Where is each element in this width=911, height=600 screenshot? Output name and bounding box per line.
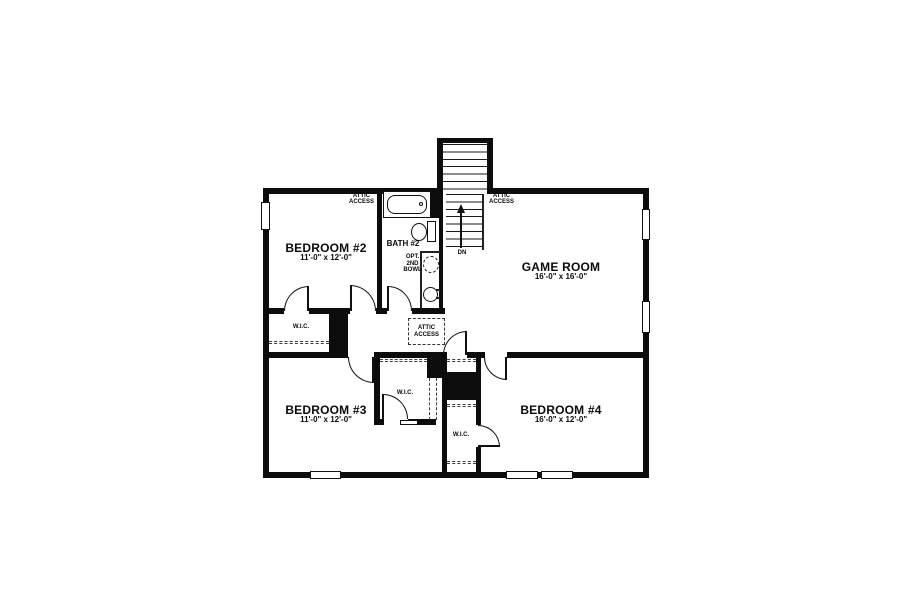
stair-edge-line [482, 194, 484, 250]
door-swing-arc [284, 286, 309, 311]
wall-chunk-beside-tub [429, 191, 443, 218]
window [310, 471, 341, 479]
stairwell-wall-right [487, 138, 493, 194]
wall-segment [263, 352, 348, 358]
gameroom-dimensions: 16'-0" x 16'-0" [505, 273, 617, 281]
attic-access-label: ATTICACCESS [346, 193, 377, 206]
wic-label: W.I.C. [444, 432, 478, 438]
sink-faucet [436, 297, 440, 299]
attic-access-label: ATTICACCESS [486, 193, 517, 206]
closet-rod [447, 404, 476, 407]
closet-rod [447, 359, 476, 362]
door-swing-arc [348, 357, 374, 383]
stair-down-label: DN [452, 250, 472, 256]
attic-access-hatch: ATTIC ACCESS [408, 318, 445, 345]
wall-chase-hall [329, 308, 348, 357]
sink-faucet [436, 289, 440, 291]
door-swing-arc [478, 425, 500, 447]
door-swing-arc [484, 357, 507, 380]
wall-segment [376, 308, 387, 314]
floor-plan: DN [0, 0, 911, 600]
window [642, 209, 650, 240]
closet-shelf [429, 378, 437, 420]
closet-rod [380, 359, 427, 362]
door-swing-arc [388, 286, 412, 311]
optional-second-bowl-fixture [423, 256, 439, 273]
attic-access-label: ATTIC ACCESS [414, 325, 439, 338]
optional-bowl-label: OPT. 2ND BOWL [400, 254, 425, 274]
cased-opening [400, 420, 418, 425]
vanity-counter-edge [420, 251, 440, 253]
wic-label: W.I.C. [284, 324, 318, 330]
toilet-tank [427, 221, 436, 242]
wall-wic4-left [442, 352, 447, 478]
bathtub-drain [419, 202, 423, 206]
door-swing-arc [350, 285, 376, 311]
bath2-label: BATH #2 [382, 240, 424, 248]
window [541, 471, 573, 479]
wall-segment [507, 352, 649, 358]
bedroom2-dimensions: 11'-0" x 12'-0" [270, 254, 382, 262]
closet-rod [269, 341, 329, 344]
wall-block-center [427, 352, 443, 378]
door-swing-arc [443, 331, 467, 355]
wall-chase-wic4 [442, 372, 481, 400]
wall-left [263, 194, 269, 478]
window [261, 202, 270, 230]
bedroom3-dimensions: 11'-0" x 12'-0" [270, 416, 382, 424]
wall-segment [263, 308, 284, 314]
window [642, 301, 650, 333]
stair-direction-arrow-line [460, 212, 462, 248]
window [506, 471, 538, 479]
wic-label: W.I.C. [388, 390, 422, 396]
stairwell-wall-top [437, 138, 493, 143]
stair-treads-upper [443, 144, 487, 194]
door-swing-arc [383, 394, 408, 419]
bedroom4-dimensions: 16'-0" x 12'-0" [505, 416, 617, 424]
wall-wic4-right [476, 447, 481, 472]
closet-rod [447, 461, 476, 464]
stair-treads-lower [446, 194, 482, 248]
